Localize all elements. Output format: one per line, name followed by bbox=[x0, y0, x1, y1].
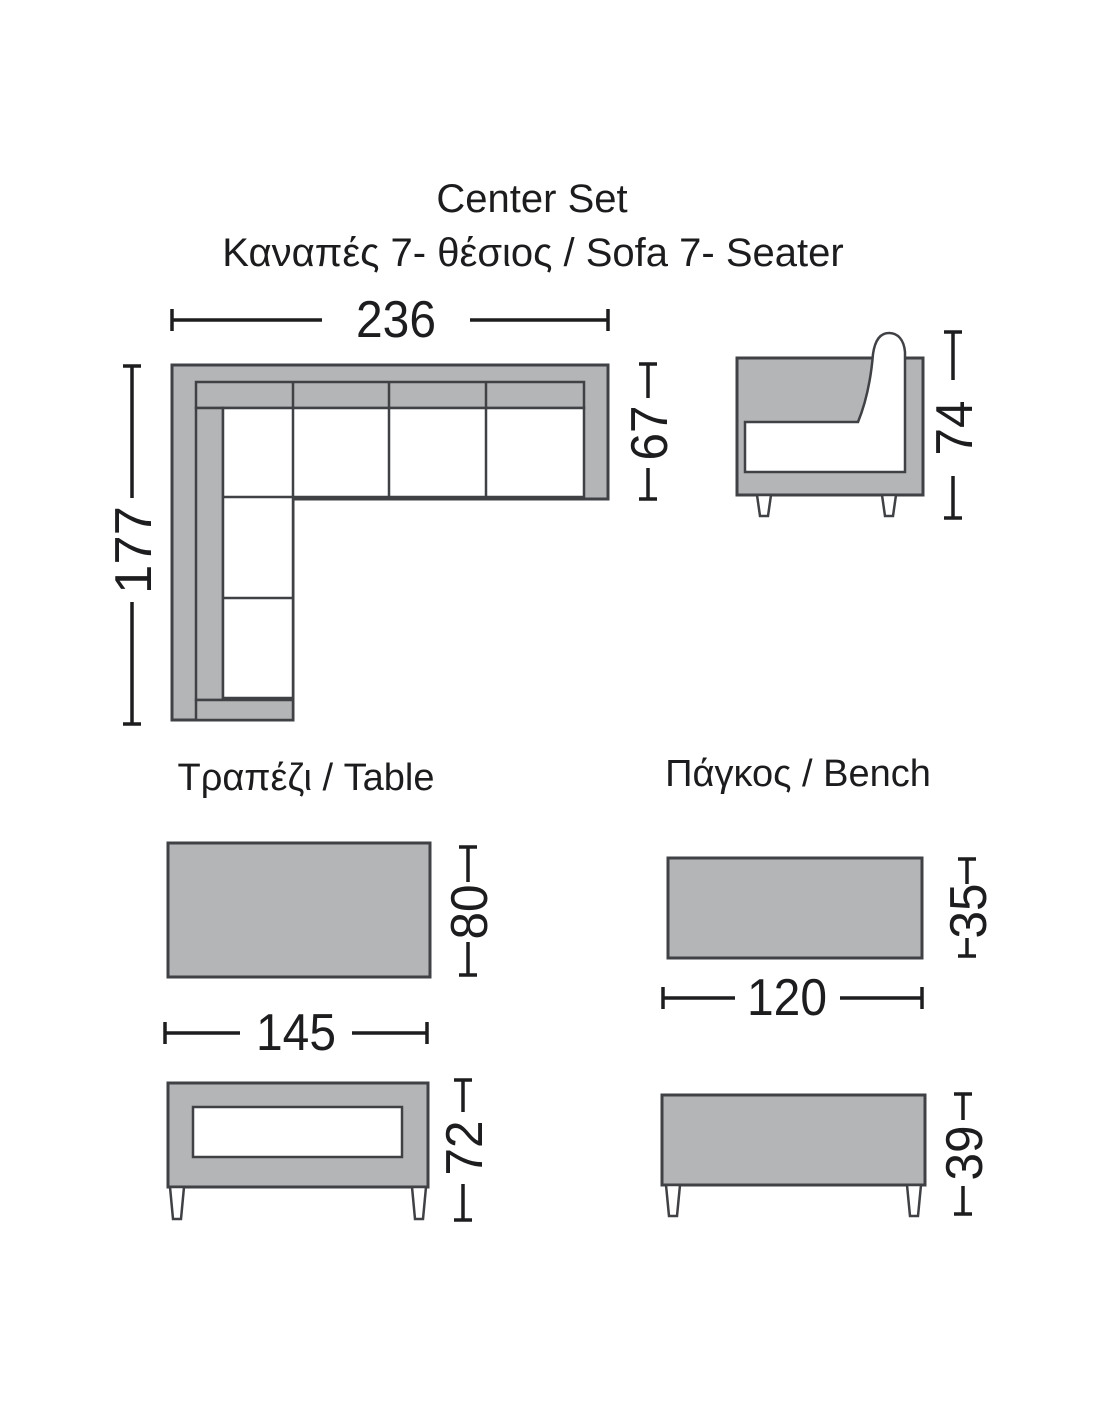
sofa-plan-seat-cushions bbox=[223, 408, 584, 698]
bench-height-value: 39 bbox=[936, 1126, 994, 1181]
dim-bench-length: 120 bbox=[663, 969, 922, 1027]
dim-sofa-width: 236 bbox=[172, 291, 608, 349]
dim-table-length: 145 bbox=[165, 1004, 427, 1062]
page-title: Center Set bbox=[436, 177, 627, 221]
dim-sofa-height: 74 bbox=[926, 332, 984, 518]
bench-side-view bbox=[662, 1095, 925, 1185]
bench-depth-value: 35 bbox=[940, 884, 998, 939]
sofa-leg bbox=[757, 495, 771, 516]
dim-table-depth: 80 bbox=[441, 847, 499, 975]
bench-section: Πάγκος / Bench 35 120 39 bbox=[662, 753, 998, 1216]
sofa-leg bbox=[882, 495, 896, 516]
sofa-width-value: 236 bbox=[356, 291, 436, 349]
table-leg bbox=[170, 1187, 184, 1219]
table-label: Τραπέζι / Table bbox=[178, 757, 435, 799]
table-section: Τραπέζι / Table 80 145 bbox=[165, 757, 499, 1220]
diagram-svg: Center Set Καναπές 7- θέσιος / Sofa 7- S… bbox=[0, 0, 1100, 1422]
table-top-view bbox=[168, 843, 430, 977]
table-length-value: 145 bbox=[256, 1004, 336, 1062]
sofa-depth-value: 67 bbox=[621, 406, 679, 461]
furniture-dimension-sheet: Center Set Καναπές 7- θέσιος / Sofa 7- S… bbox=[0, 0, 1100, 1422]
dim-bench-depth: 35 bbox=[940, 859, 998, 956]
bench-top-view bbox=[668, 858, 922, 958]
table-height-value: 72 bbox=[436, 1121, 494, 1176]
bench-leg bbox=[907, 1185, 921, 1216]
table-leg bbox=[412, 1187, 426, 1219]
page-subtitle: Καναπές 7- θέσιος / Sofa 7- Seater bbox=[222, 231, 843, 275]
dim-sofa-depth: 67 bbox=[621, 364, 679, 499]
sofa-plan-view: 236 67 177 bbox=[105, 291, 679, 724]
bench-leg bbox=[666, 1185, 680, 1216]
bench-label: Πάγκος / Bench bbox=[665, 753, 931, 795]
dim-bench-height: 39 bbox=[936, 1094, 994, 1214]
sofa-height-value: 74 bbox=[926, 401, 984, 456]
dim-sofa-length: 177 bbox=[105, 366, 163, 724]
sofa-length-value: 177 bbox=[105, 506, 163, 594]
sofa-side-view: 74 bbox=[737, 332, 984, 518]
sofa-plan-end-cap bbox=[196, 700, 293, 720]
sofa-plan-backrest-left bbox=[196, 408, 223, 700]
bench-length-value: 120 bbox=[747, 969, 827, 1027]
table-depth-value: 80 bbox=[441, 885, 499, 940]
table-side-shelf-opening bbox=[193, 1107, 402, 1157]
header: Center Set Καναπές 7- θέσιος / Sofa 7- S… bbox=[222, 177, 843, 275]
dim-table-height: 72 bbox=[436, 1080, 494, 1220]
